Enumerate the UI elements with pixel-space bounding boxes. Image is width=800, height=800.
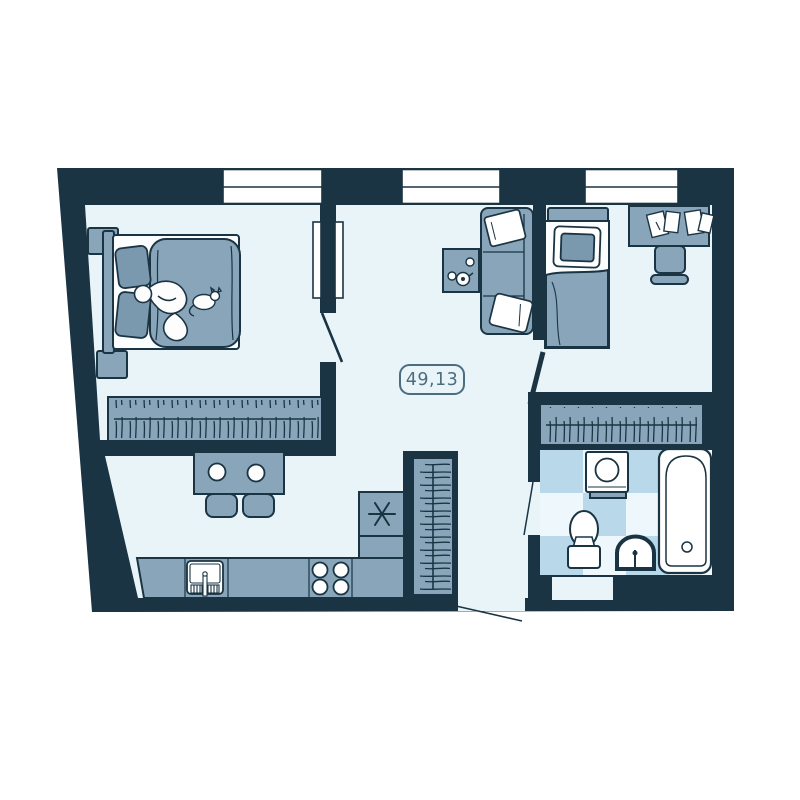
single-bed-icon xyxy=(545,208,609,348)
plate-icon xyxy=(209,464,226,481)
area-label-text: 49,13 xyxy=(406,370,459,390)
faucet xyxy=(203,576,207,596)
hall-closet-icon xyxy=(540,404,703,445)
refrigerator-snowflake-icon xyxy=(359,492,405,558)
bathtub-icon xyxy=(659,449,711,573)
drain xyxy=(682,542,692,552)
chair-icon xyxy=(206,494,237,517)
wardrobe-hangers-icon xyxy=(108,397,322,441)
sofa-icon xyxy=(481,208,533,334)
pillow xyxy=(115,245,152,289)
chair-icon xyxy=(243,494,274,517)
window-icon xyxy=(223,170,322,204)
bathroom-door-opening xyxy=(528,482,540,535)
bedroom-1-door-opening xyxy=(320,313,336,362)
blanket xyxy=(546,270,608,347)
tall-cabinet-icon xyxy=(403,451,458,611)
kitchen-sink-icon xyxy=(187,561,223,596)
nightstand-icon xyxy=(97,351,127,378)
bathroom-sink-icon xyxy=(617,537,654,570)
windows xyxy=(223,170,678,204)
area-label: 49,13 xyxy=(400,365,464,394)
floorplan-page: 49,13 xyxy=(0,0,800,800)
kitchen-counter-icon xyxy=(137,558,405,598)
plate-icon xyxy=(248,465,265,482)
cup-icon xyxy=(466,258,474,266)
window-icon xyxy=(585,170,678,204)
window-icon xyxy=(402,170,500,204)
wall-niche xyxy=(552,577,613,600)
floorplan-canvas: 49,13 xyxy=(0,0,800,800)
desk-icon xyxy=(629,206,714,246)
desk-chair-icon xyxy=(651,246,688,284)
coffee-table-icon xyxy=(443,249,479,292)
cup-icon xyxy=(448,272,456,280)
washing-machine-icon xyxy=(586,452,628,498)
toilet-icon xyxy=(568,511,600,568)
